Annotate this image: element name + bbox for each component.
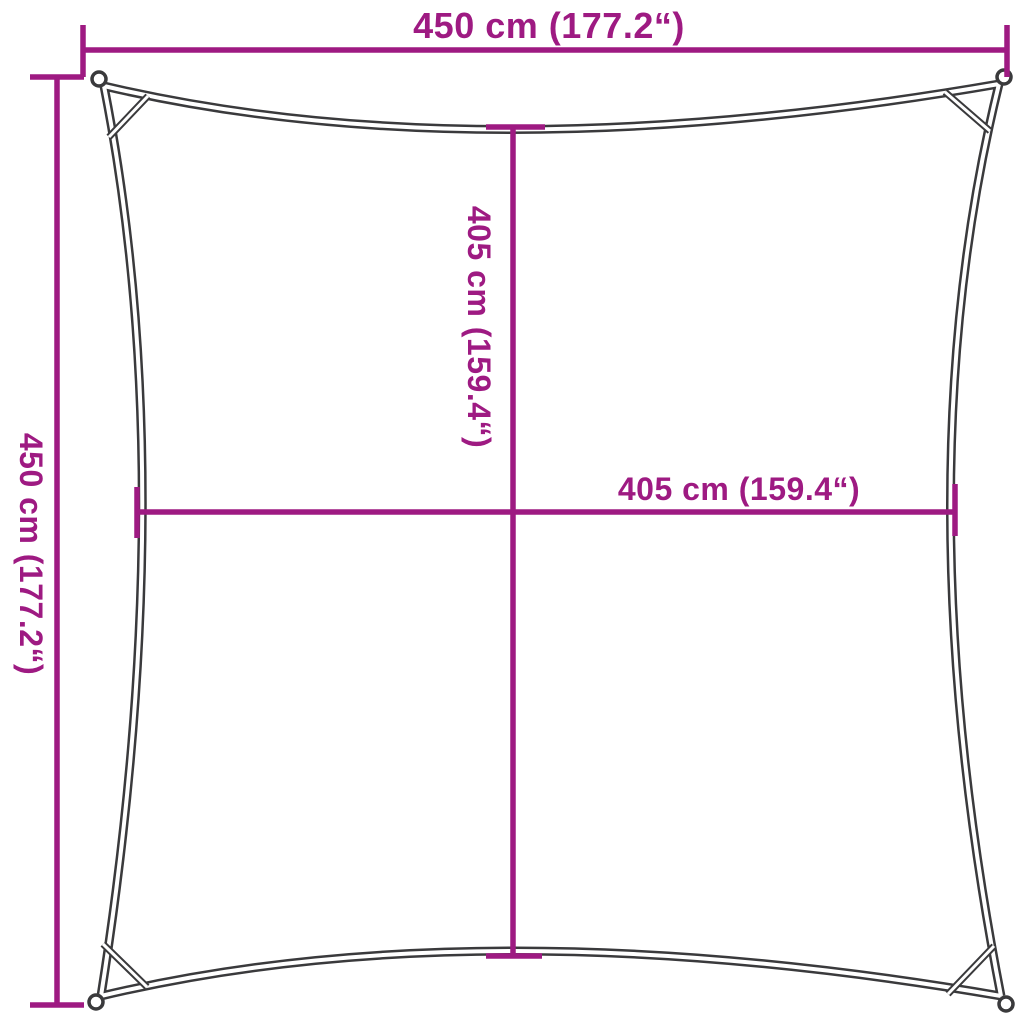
sail-outline [89,70,1013,1011]
sail-edges [101,84,1001,996]
corner-ring-top-left [92,72,106,86]
sail-edges-inner-gap [101,84,1001,996]
dimension-lines [30,25,1007,1005]
top-dimension-label: 450 cm (177.2“) [413,8,685,44]
diagram-canvas [0,0,1024,1024]
dimension-diagram: 450 cm (177.2“) 450 cm (177.2“) 405 cm (… [0,0,1024,1024]
corner-ring-bottom-right [999,997,1013,1011]
inner-horizontal-dimension-label: 405 cm (159.4“) [618,473,860,505]
corner-ring-bottom-left [89,995,103,1009]
inner-vertical-dimension-label: 405 cm (159.4“) [463,206,495,448]
corner-patches [103,92,994,994]
left-dimension-label: 450 cm (177.2“) [15,433,47,675]
corner-patches-inner-gap [103,92,994,994]
